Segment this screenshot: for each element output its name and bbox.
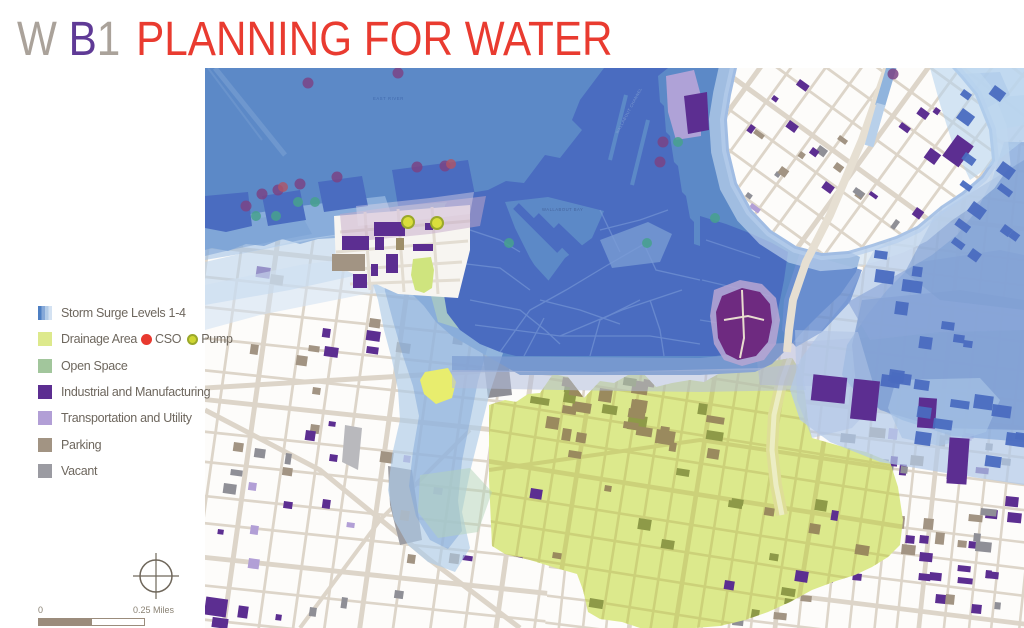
svg-text:EAST RIVER: EAST RIVER — [373, 96, 404, 101]
svg-text:WALLABOUT BAY: WALLABOUT BAY — [542, 207, 583, 212]
